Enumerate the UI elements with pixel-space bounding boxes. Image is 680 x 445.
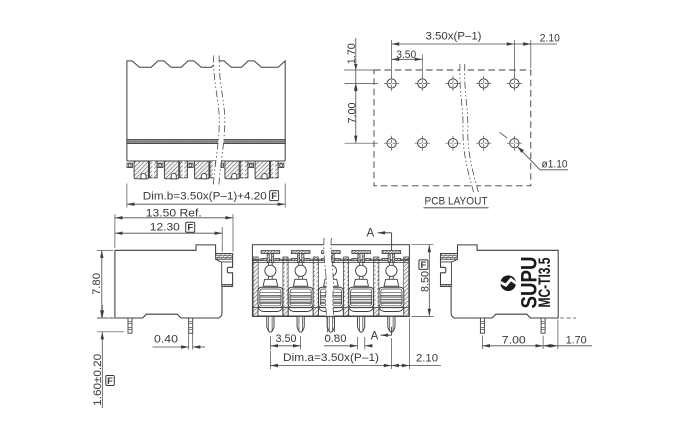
- svg-text:12.30: 12.30: [150, 221, 180, 233]
- svg-text:1.70: 1.70: [346, 43, 358, 64]
- svg-text:Dim.b=3.50x(P–1)+4.20: Dim.b=3.50x(P–1)+4.20: [143, 191, 267, 203]
- svg-text:ø1.10: ø1.10: [542, 158, 568, 170]
- svg-text:1.60±0.20: 1.60±0.20: [92, 354, 104, 406]
- svg-text:2.10: 2.10: [540, 33, 560, 45]
- svg-text:0.80: 0.80: [325, 333, 347, 345]
- svg-text:MC-TI3.5: MC-TI3.5: [536, 258, 554, 308]
- svg-text:3.50: 3.50: [276, 333, 297, 345]
- svg-text:7.00: 7.00: [502, 335, 526, 347]
- svg-text:F: F: [187, 222, 193, 233]
- svg-text:8.50: 8.50: [419, 271, 431, 292]
- svg-text:F: F: [421, 259, 427, 270]
- svg-text:F: F: [271, 190, 277, 201]
- svg-text:1.70: 1.70: [566, 335, 587, 347]
- svg-text:3.50: 3.50: [396, 49, 416, 61]
- svg-text:0.40: 0.40: [154, 333, 178, 345]
- svg-text:Dim.a=3.50x(P–1): Dim.a=3.50x(P–1): [283, 352, 379, 364]
- svg-text:3.50x(P–1): 3.50x(P–1): [426, 31, 482, 43]
- svg-text:A: A: [371, 330, 379, 342]
- svg-text:7.80: 7.80: [91, 273, 103, 295]
- svg-text:PCB LAYOUT: PCB LAYOUT: [425, 196, 488, 208]
- svg-text:13.50 Ref.: 13.50 Ref.: [146, 207, 202, 219]
- svg-text:F: F: [107, 375, 113, 386]
- svg-text:A: A: [366, 227, 374, 239]
- svg-text:7.00: 7.00: [347, 103, 359, 124]
- svg-text:2.10: 2.10: [416, 352, 438, 364]
